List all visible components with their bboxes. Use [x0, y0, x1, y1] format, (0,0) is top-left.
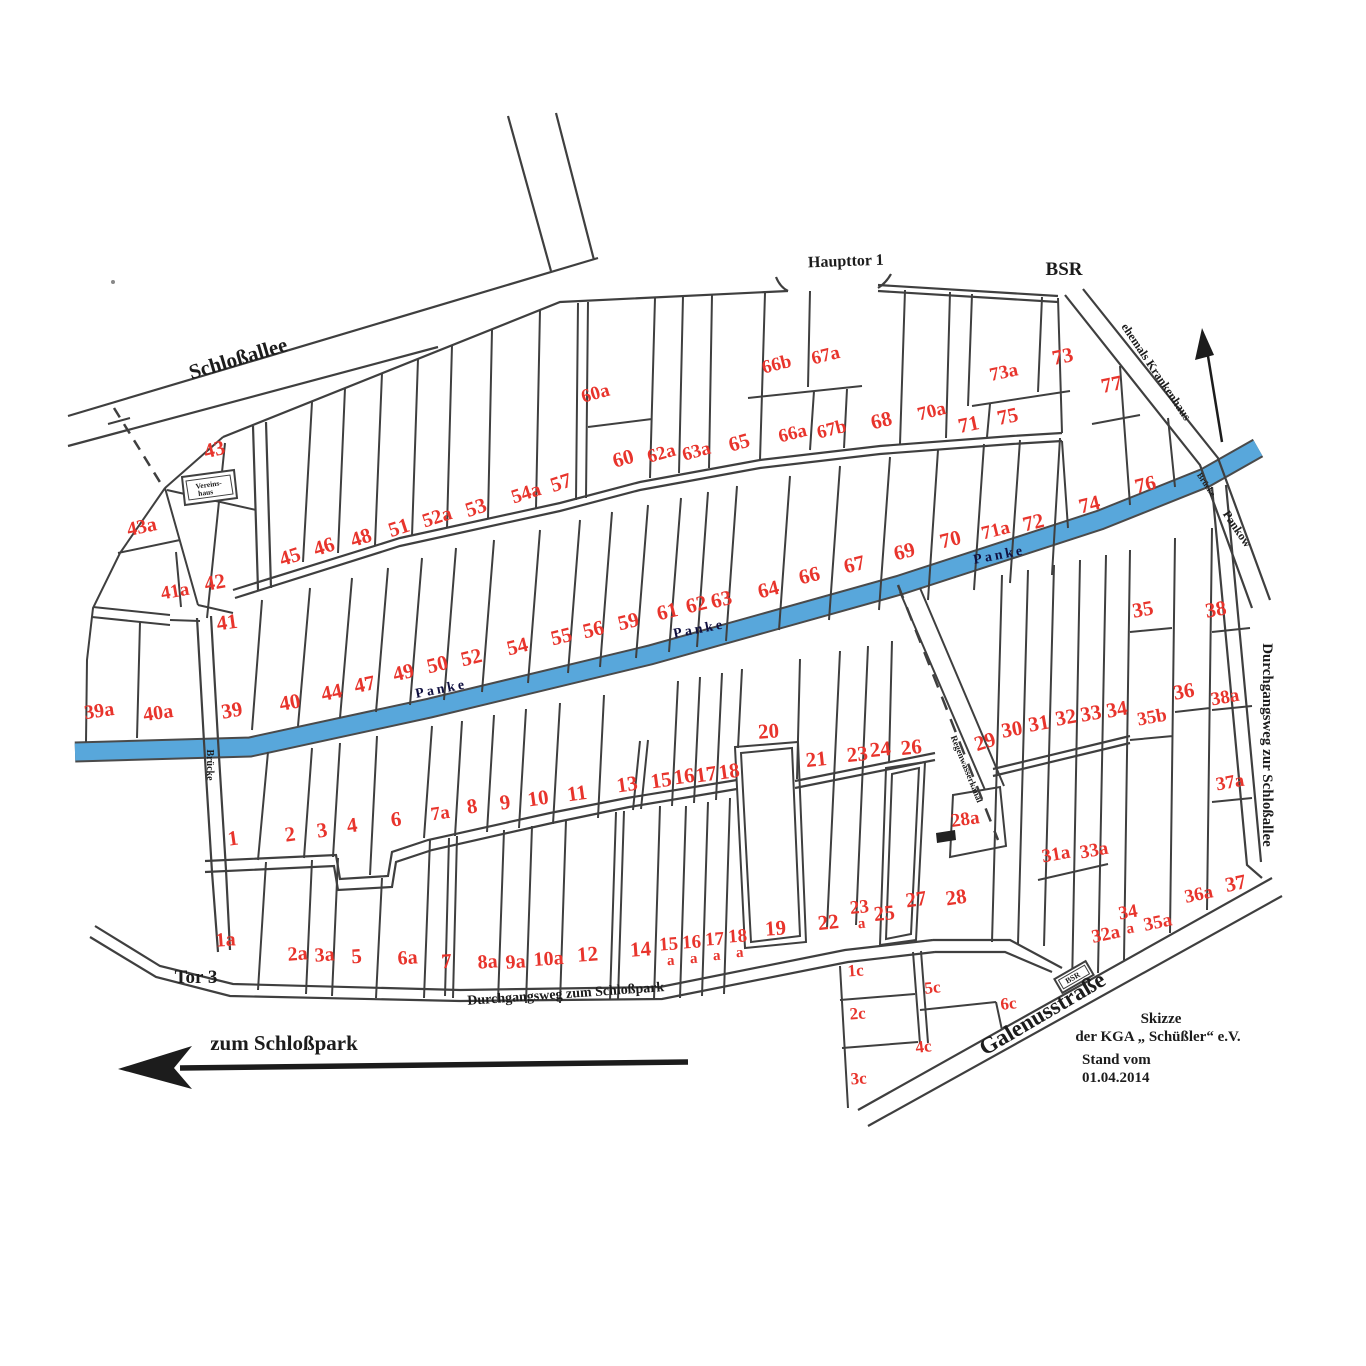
legend-subtitle: der KGA „ Schüßler“ e.V. [1075, 1029, 1241, 1045]
legend-date: 01.04.2014 [1082, 1070, 1150, 1086]
plot-label-28a: 28a [950, 807, 982, 832]
plot-label-20: 20 [757, 718, 780, 743]
stray-mark [111, 280, 115, 284]
plot-label-12: 12 [576, 941, 599, 966]
legend-title: Skizze [1141, 1011, 1182, 1027]
street-label-br-cke: Brücke [204, 749, 215, 781]
plot-label-33: 33 [1078, 699, 1103, 726]
plot-label-18: 18 [717, 758, 741, 785]
plot-label-40a: 40a [142, 700, 175, 726]
plot-label-15: 15 [649, 767, 673, 794]
plot-label-10a: 10a [533, 947, 564, 971]
map-background [0, 0, 1366, 1366]
plot-label-3c: 3c [850, 1068, 868, 1088]
plot-label-4c: 4c [914, 1036, 932, 1057]
plot-label-22: 22 [817, 909, 840, 935]
plot-label-32: 32 [1053, 703, 1078, 730]
plot-label-7: 7 [440, 949, 452, 974]
street-label-durchgangsweg-zur-schlo-allee: Durchgangsweg zur Schloßallee [1259, 643, 1275, 847]
plot-label-2a: 2a [287, 942, 308, 965]
street-label-tor-3: Tor 3 [175, 967, 218, 988]
street-label-zum-schlo-park: zum Schloßpark [210, 1031, 358, 1055]
plot-label-9a: 9a [505, 950, 526, 973]
plot-label-21: 21 [805, 746, 828, 772]
plot-label-10: 10 [526, 785, 550, 812]
plot-label-6a: 6a [397, 946, 418, 969]
plot-label-39: 39 [219, 696, 244, 723]
plot-label-14: 14 [629, 936, 652, 961]
plot-label-30: 30 [999, 715, 1024, 742]
street-label-bsr: BSR [1046, 259, 1083, 280]
plot-label-5: 5 [350, 944, 362, 969]
legend-stand-vom: Stand vom [1082, 1052, 1151, 1068]
plot-label-6c: 6c [999, 993, 1017, 1014]
plot-label-39a: 39a [83, 698, 116, 724]
allotment-map: 4343a4241a4139a40a394044474546485152a535… [0, 0, 1366, 1366]
plot-label-24: 24 [869, 736, 893, 762]
plot-label-19: 19 [764, 915, 787, 940]
plot-label-28: 28 [944, 884, 968, 911]
plot-label-8a: 8a [477, 950, 498, 973]
plot-label-23: 23 [846, 741, 869, 767]
plot-label-25: 25 [873, 900, 896, 926]
plot-label-26: 26 [900, 734, 923, 760]
plot-label-5c: 5c [923, 977, 941, 998]
plot-label-40: 40 [277, 688, 302, 715]
street-label-haupttor-1: Haupttor 1 [808, 252, 884, 272]
plot-label-7a: 7a [429, 802, 451, 826]
plot-label-13: 13 [615, 771, 639, 798]
plot-label-36: 36 [1171, 677, 1196, 704]
plot-label-41: 41 [215, 609, 239, 636]
plot-label-35: 35 [1130, 595, 1155, 622]
plot-label-17: 17 [694, 761, 718, 788]
plot-label-1a: 1a [215, 928, 236, 951]
plot-label-27: 27 [904, 886, 928, 913]
plot-label-2c: 2c [849, 1003, 867, 1023]
plot-label-1c: 1c [847, 960, 865, 980]
plot-label-42: 42 [202, 568, 227, 595]
plot-label-11: 11 [566, 780, 589, 807]
plot-label-3a: 3a [314, 943, 335, 966]
plot-label-31: 31 [1026, 709, 1051, 736]
plot-label-16: 16 [672, 763, 696, 790]
plot-label-38: 38 [1203, 595, 1228, 622]
